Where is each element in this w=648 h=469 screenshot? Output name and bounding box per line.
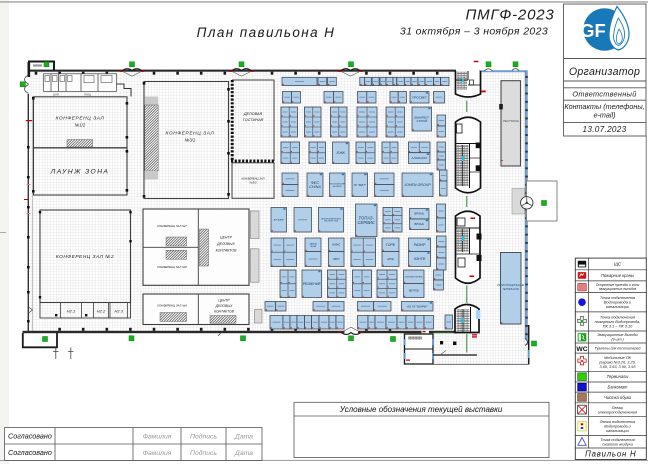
svg-text:Дата: Дата <box>234 434 253 441</box>
svg-text:ЛАУНЖ ЗОНА: ЛАУНЖ ЗОНА <box>50 169 110 176</box>
svg-text:План павильона Н: План павильона Н <box>197 25 336 40</box>
svg-text:КОНФЕРЕНЦ ЗАЛ №9: КОНФЕРЕНЦ ЗАЛ №9 <box>157 304 187 308</box>
svg-text:ПИЩ: ПИЩ <box>84 93 91 97</box>
svg-text:Подпись: Подпись <box>190 449 217 457</box>
svg-text:ПК 3.1 – ПК 3.10: ПК 3.1 – ПК 3.10 <box>603 323 634 328</box>
svg-text:АВРО: АВРО <box>332 258 340 261</box>
svg-text:сжатого воздуха: сжатого воздуха <box>602 442 632 446</box>
svg-text:ГК "ВИТ": ГК "ВИТ" <box>354 183 367 187</box>
svg-text:канализации: канализации <box>606 429 629 433</box>
svg-text:№1/2: №1/2 <box>75 123 86 128</box>
svg-text:РАЗИР: РАЗИР <box>414 243 426 247</box>
svg-text:АЛЬФАГАЗ: АЛЬФАГАЗ <box>411 156 427 160</box>
svg-text:Чистка обуви: Чистка обуви <box>604 395 632 400</box>
svg-text:Организатор: Организатор <box>569 66 640 78</box>
svg-text:(9 шт.): (9 шт.) <box>611 337 623 341</box>
svg-text:CHINA: CHINA <box>309 185 321 189</box>
svg-text:Н2.1: Н2.1 <box>67 309 75 314</box>
svg-text:КОНФЕРЕНЦ ЗАЛ: КОНФЕРЕНЦ ЗАЛ <box>241 177 264 181</box>
svg-text:АРОБАЗЕ: АРОБАЗЕ <box>273 219 285 222</box>
svg-text:РЕСТОРАН: РЕСТОРАН <box>503 119 520 123</box>
svg-text:ТЕРМИНАЛЫ: ТЕРМИНАЛЫ <box>502 287 519 291</box>
svg-text:Условные обозначения текущей в: Условные обозначения текущей выставки <box>339 405 503 414</box>
svg-text:ЦЕНТР: ЦЕНТР <box>220 236 233 240</box>
svg-text:Н2.3: Н2.3 <box>114 309 123 314</box>
svg-text:ВРОНЬ: ВРОНЬ <box>414 212 424 216</box>
svg-text:ГОСТИНАЯ: ГОСТИНАЯ <box>243 118 264 122</box>
svg-text:Банкомат: Банкомат <box>608 385 628 390</box>
svg-text:Подпись: Подпись <box>190 433 217 441</box>
svg-text:СТРОЙ: СТРОЙ <box>416 119 427 123</box>
svg-text:ВЕТРОВ: ВЕТРОВ <box>409 289 419 292</box>
svg-text:РЕШЕНИЕ: РЕШЕНИЕ <box>303 282 322 286</box>
svg-text:КОМПЛЕКТСЕРВИС: КОМПЛЕКТСЕРВИС <box>405 276 424 278</box>
svg-text:ДЕЛОВАЯ: ДЕЛОВАЯ <box>243 112 263 116</box>
svg-text:эвакуационных выходов: эвакуационных выходов <box>599 287 637 291</box>
svg-text:ГОРЕ: ГОРЕ <box>386 243 396 247</box>
svg-text:Согласовано: Согласовано <box>8 432 52 441</box>
svg-text:Терминалы: Терминалы <box>607 374 629 379</box>
svg-text:КОНФЕРЕНЦ ЗАЛ: КОНФЕРЕНЦ ЗАЛ <box>56 116 105 122</box>
svg-text:Водопровода и: Водопровода и <box>604 424 631 428</box>
svg-text:электроподключения: электроподключения <box>598 409 637 414</box>
svg-text:WC: WC <box>576 346 587 353</box>
svg-text:канализации: канализации <box>606 304 630 309</box>
svg-text:ИНЭКС: ИНЭКС <box>332 244 340 247</box>
svg-text:КОНФЕРЕНЦ ЗАЛ №8: КОНФЕРЕНЦ ЗАЛ №8 <box>157 265 187 269</box>
svg-text:ПРОСВЕТ: ПРОСВЕТ <box>412 95 428 99</box>
svg-text:Павильон Н: Павильон Н <box>585 449 636 458</box>
svg-text:РЕГИСТРАЦИОННЫЕ: РЕГИСТРАЦИОННЫЕ <box>497 283 524 287</box>
svg-text:Н2.2: Н2.2 <box>97 309 106 314</box>
svg-text:ВРОНЬ: ВРОНЬ <box>414 222 424 226</box>
svg-text:Ответственный: Ответственный <box>572 90 636 99</box>
svg-text:Дата: Дата <box>234 450 253 457</box>
svg-text:3.60, 3.63, 3.90, 3.93: 3.60, 3.63, 3.90, 3.93 <box>600 365 637 369</box>
svg-text:Точка подключения: Точка подключения <box>600 438 634 442</box>
svg-text:ДЕТАЛИ: ДЕТАЛИ <box>332 185 342 188</box>
svg-text:Туалеты для посетителей: Туалеты для посетителей <box>595 346 641 350</box>
svg-text:СЕРВИС: СЕРВИС <box>357 220 375 225</box>
svg-text:№3/1: №3/1 <box>185 138 196 143</box>
svg-text:ЕЖК: ЕЖК <box>337 151 346 155</box>
svg-text:КОНФЕРЕНЦ ЗАЛ: КОНФЕРЕНЦ ЗАЛ <box>166 131 215 137</box>
svg-text:Пожарные краны: Пожарные краны <box>601 273 634 278</box>
svg-text:ЭКСПЕРТ РУД: ЭКСПЕРТ РУД <box>324 221 339 223</box>
svg-text:Фамилия: Фамилия <box>143 450 172 457</box>
svg-text:АРСЕ: АРСЕ <box>386 257 394 261</box>
svg-text:КЭНТВ: КЭНТВ <box>414 257 426 261</box>
svg-text:ДЕЛОВЫХ: ДЕЛОВЫХ <box>216 242 235 246</box>
svg-text:Согласовано: Согласовано <box>8 448 52 457</box>
svg-text:КОНФЕРЕНЦ ЗАЛ №7: КОНФЕРЕНЦ ЗАЛ №7 <box>157 224 187 228</box>
svg-text:ЛЕНА: ЛЕНА <box>309 245 317 248</box>
svg-text:ДЕЛОВЫХ: ДЕЛОВЫХ <box>215 304 233 308</box>
svg-text:ЩС: ЩС <box>614 262 622 267</box>
svg-text:КОНФЕРЕНЦ ЗАЛ №2: КОНФЕРЕНЦ ЗАЛ №2 <box>56 254 114 260</box>
svg-text:JOHEN GROUP: JOHEN GROUP <box>403 183 431 187</box>
svg-text:Фамилия: Фамилия <box>143 434 172 441</box>
svg-text:ПМГФ-2023: ПМГФ-2023 <box>465 7 554 24</box>
svg-text:№3/3: №3/3 <box>250 181 257 185</box>
svg-text:e-mail): e-mail) <box>594 111 616 120</box>
svg-text:ЦЕНТР: ЦЕНТР <box>218 299 230 303</box>
svg-text:31 октября – 3 ноября 2023: 31 октября – 3 ноября 2023 <box>400 26 548 38</box>
svg-text:БУФ: БУФ <box>53 93 60 97</box>
svg-text:КОНТАКТОВ: КОНТАКТОВ <box>216 249 237 253</box>
svg-text:GF: GF <box>580 20 606 41</box>
svg-text:АО ГК "ШАРМ": АО ГК "ШАРМ" <box>406 304 429 308</box>
svg-text:КОНТАКТОВ: КОНТАКТОВ <box>214 310 234 314</box>
svg-text:(гараж) №3.26, 3.29,: (гараж) №3.26, 3.29, <box>599 361 635 365</box>
svg-text:13.07.2023: 13.07.2023 <box>583 125 627 134</box>
